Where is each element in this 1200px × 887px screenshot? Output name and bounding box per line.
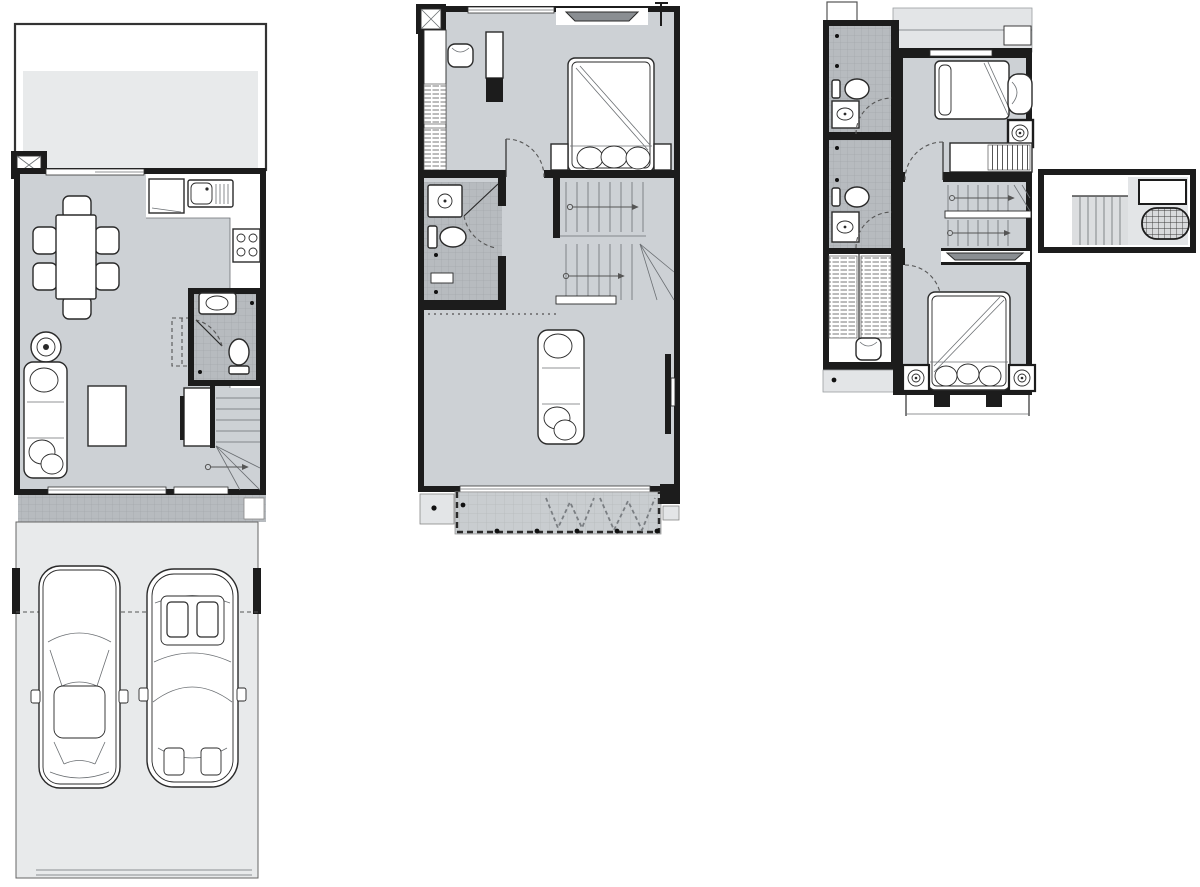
wash-basin [199, 293, 236, 314]
wardrobe-cabinet [486, 32, 503, 102]
tv-cabinet [180, 388, 212, 446]
water-tank-grated [1142, 208, 1189, 239]
first-floor-plan [11, 24, 266, 878]
nightstand [654, 144, 671, 170]
kitchen-sink [188, 180, 233, 207]
balustrade [556, 296, 616, 304]
tv [180, 396, 184, 440]
door-opening [506, 170, 544, 178]
carport-driveway [12, 522, 261, 878]
sofa [538, 330, 584, 444]
column-marker [416, 4, 446, 34]
second-floor-plan [416, 2, 680, 534]
wall-stub-right [253, 568, 261, 614]
toilet [229, 339, 249, 374]
dining-table [56, 215, 96, 299]
dining-chair [33, 227, 57, 254]
floor-plan-drawing [0, 0, 1200, 887]
balustrade [945, 211, 1031, 218]
dining-chair [95, 263, 119, 290]
yard-paving [23, 71, 258, 168]
stair-bulkhead [1072, 196, 1128, 245]
floor-drain [835, 64, 839, 68]
round-side-table [31, 332, 61, 362]
condenser-ledge [420, 494, 454, 524]
single-bed [935, 61, 1009, 119]
refrigerator [149, 179, 184, 213]
floor-drain [250, 301, 254, 305]
double-bed [928, 292, 1010, 390]
floor-drain [434, 253, 438, 257]
pillow [601, 146, 627, 168]
coffee-table [88, 386, 126, 446]
speaker-nightstand [903, 365, 929, 391]
closet-strip [424, 30, 446, 172]
dining-chair [95, 227, 119, 254]
pillow [626, 147, 650, 169]
rear-porch [18, 495, 266, 522]
mirror [139, 688, 148, 701]
armchair [448, 44, 473, 67]
mirror [119, 690, 128, 703]
floor-drain [835, 146, 839, 150]
equipment-box [1139, 180, 1186, 204]
right-portion [893, 48, 1035, 416]
bathroom-1f [188, 288, 262, 386]
roof-box [1004, 26, 1031, 45]
sofa [24, 362, 67, 478]
wardrobe-rail [950, 143, 1032, 172]
rear-window-band [174, 487, 228, 494]
pillow [979, 366, 1001, 386]
door-opening [905, 248, 941, 265]
floor-drain [835, 34, 839, 38]
door-opening [905, 172, 943, 182]
wash-basin [832, 212, 859, 242]
wall-stub-left [12, 568, 20, 614]
toilet [428, 226, 466, 248]
vent-notch [827, 2, 857, 22]
window-band [930, 50, 992, 56]
nightstand [551, 144, 568, 170]
air-conditioner [947, 253, 1023, 260]
first-floor-body [14, 168, 266, 495]
third-floor-plan [823, 2, 1035, 416]
toilet [832, 79, 869, 99]
wash-basin [832, 101, 859, 128]
pillow [935, 366, 957, 386]
shelf [431, 273, 453, 283]
air-conditioner [556, 8, 648, 25]
dining-chair [33, 263, 57, 290]
balcony-tiles [455, 492, 661, 534]
double-bed [568, 58, 654, 172]
bathroom-2f [418, 178, 506, 310]
floor-plan-sheet [0, 0, 1200, 887]
front-yard [15, 24, 266, 170]
floor-drain [835, 178, 839, 182]
mirror [31, 690, 40, 703]
speaker-nightstand [1009, 365, 1035, 391]
pillow [577, 147, 603, 169]
floor-drain [198, 370, 202, 374]
pillow [939, 65, 951, 115]
rear-door-band [48, 487, 166, 494]
floor-drain [434, 290, 438, 294]
lounge-chair [1008, 74, 1032, 114]
left-strip [823, 20, 899, 370]
roof-plan [1041, 172, 1193, 250]
sedan-car [31, 566, 128, 788]
cooktop-4-burner [233, 229, 260, 262]
toilet [832, 187, 869, 207]
window-mullions [906, 395, 1029, 416]
mirror [237, 688, 246, 701]
pillow [957, 364, 979, 384]
shower [428, 185, 462, 217]
desk-chair [856, 338, 881, 360]
sports-car [139, 569, 246, 787]
